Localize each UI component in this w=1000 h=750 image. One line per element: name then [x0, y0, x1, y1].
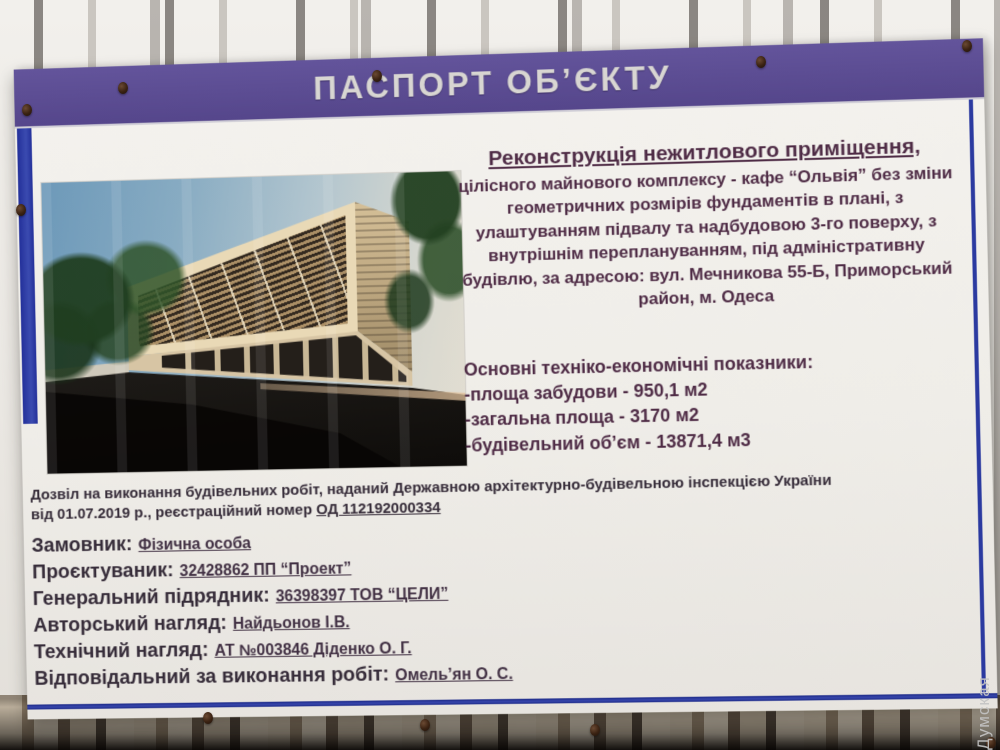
party-value: АТ №003846 Діденко О. Г. [214, 640, 412, 660]
screw-bolt [590, 724, 600, 736]
screw-bolt [756, 56, 766, 68]
party-value: Найдьонов І.В. [233, 614, 350, 633]
screw-bolt [203, 712, 213, 724]
party-label: Генеральний підрядник: [33, 585, 270, 610]
project-title-block: Реконструкція нежитлового приміщення, ці… [449, 133, 964, 315]
screw-bolt [962, 40, 972, 52]
technical-indicators: Основні техніко-економічні показники: -п… [464, 347, 962, 459]
blue-frame-bottom [27, 693, 997, 709]
party-label: Проєктуваник: [32, 559, 174, 583]
party-label: Відповідальний за виконання робіт: [34, 663, 389, 689]
screw-bolt [16, 204, 26, 216]
screw-bolt [420, 719, 430, 731]
party-value: 32428862 ПП “Проект” [179, 560, 351, 580]
glossy-sheen [41, 171, 467, 474]
building-render-photo [41, 171, 467, 474]
party-value: Фізична особа [138, 535, 251, 554]
party-label: Авторський нагляд: [33, 612, 227, 637]
screw-bolt [22, 104, 32, 116]
screw-bolt [372, 70, 382, 82]
permit-registration-number: ОД 112192000334 [316, 499, 441, 518]
party-value: Омель’ян О. С. [395, 666, 513, 684]
party-value: 36398397 ТОВ “ЦЕЛИ” [275, 586, 448, 606]
photo-scene: ПАСПОРТ ОБ’ЄКТУ Рекон [0, 0, 1000, 750]
screw-bolt [118, 82, 128, 94]
watermark-dumskaya: Думская [974, 630, 994, 750]
permit-line2-prefix: від 01.07.2019 р., реєстраційний номер [31, 502, 317, 524]
permit-paragraph: Дозвіл на виконання будівельних робіт, н… [30, 468, 964, 526]
construction-passport-board: ПАСПОРТ ОБ’ЄКТУ Рекон [14, 38, 998, 719]
party-label: Замовник: [31, 533, 132, 556]
blue-frame-left [17, 128, 38, 424]
responsible-parties-list: Замовник:Фізична особа Проєктуваник:3242… [31, 519, 982, 695]
party-label: Технічний нагляд: [34, 639, 209, 663]
board-body: Реконструкція нежитлового приміщення, ці… [15, 99, 998, 719]
project-description: цілісного майнового комплексу - кафе “Ол… [450, 161, 964, 316]
page-title: ПАСПОРТ ОБ’ЄКТУ [313, 58, 672, 107]
